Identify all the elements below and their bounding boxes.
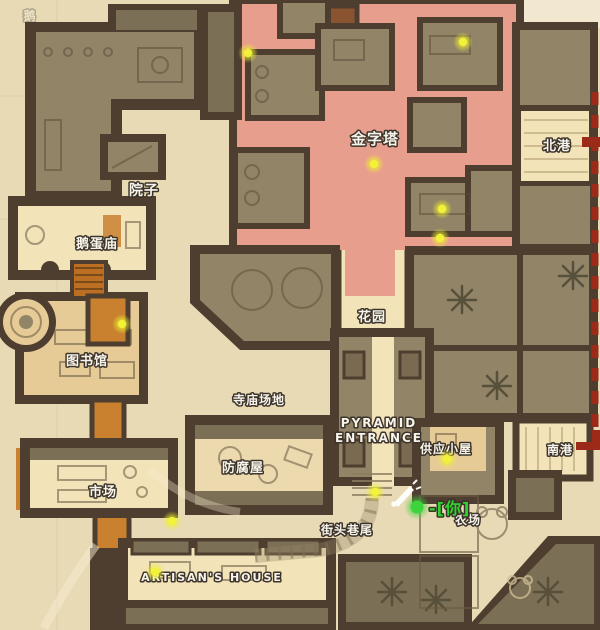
map-label-pyramid-entrance: PYRAMIDENTRANCE	[335, 416, 423, 445]
player-dot	[411, 501, 424, 514]
map-label-library: 图书馆	[66, 353, 108, 369]
map-canvas: 鹅金字塔北港院子鹅蛋庙花园图书馆寺庙场地PYRAMIDENTRANCE供应小屋南…	[0, 0, 600, 630]
loot-dot-core	[151, 568, 159, 576]
loot-dot-core	[436, 234, 444, 242]
player-label: -[你]	[429, 499, 470, 518]
loot-dot-core	[118, 320, 126, 328]
map-label-garden: 花园	[358, 309, 386, 325]
map-label-market: 市场	[89, 484, 117, 500]
loot-dot-core	[244, 49, 252, 57]
building-supply-hut	[412, 418, 504, 504]
map-label-ghost-corner: 鹅	[23, 8, 36, 23]
map-label-pyramid: 金字塔	[350, 130, 399, 148]
loot-dot-core	[371, 488, 379, 496]
map-label-south-port: 南港	[547, 442, 573, 457]
loot-dot-core	[443, 455, 451, 463]
game-map[interactable]: 鹅金字塔北港院子鹅蛋庙花园图书馆寺庙场地PYRAMIDENTRANCE供应小屋南…	[0, 0, 600, 630]
map-label-embalming-house: 防腐屋	[222, 460, 264, 476]
map-label-temple-grounds: 寺庙场地	[233, 392, 285, 407]
map-label-street-corner: 街头巷尾	[320, 522, 373, 537]
map-label-courtyard: 院子	[129, 182, 159, 199]
map-label-north-port: 北港	[543, 138, 571, 154]
loot-dot-core	[370, 160, 378, 168]
building-north-port	[512, 22, 598, 248]
courtyard-hut	[100, 134, 166, 180]
loot-dot-core	[438, 205, 446, 213]
building-upper-mid	[200, 4, 242, 120]
loot-dot-core	[168, 517, 176, 525]
loot-dot-core	[459, 38, 467, 46]
map-label-egg-temple: 鹅蛋庙	[76, 236, 118, 252]
